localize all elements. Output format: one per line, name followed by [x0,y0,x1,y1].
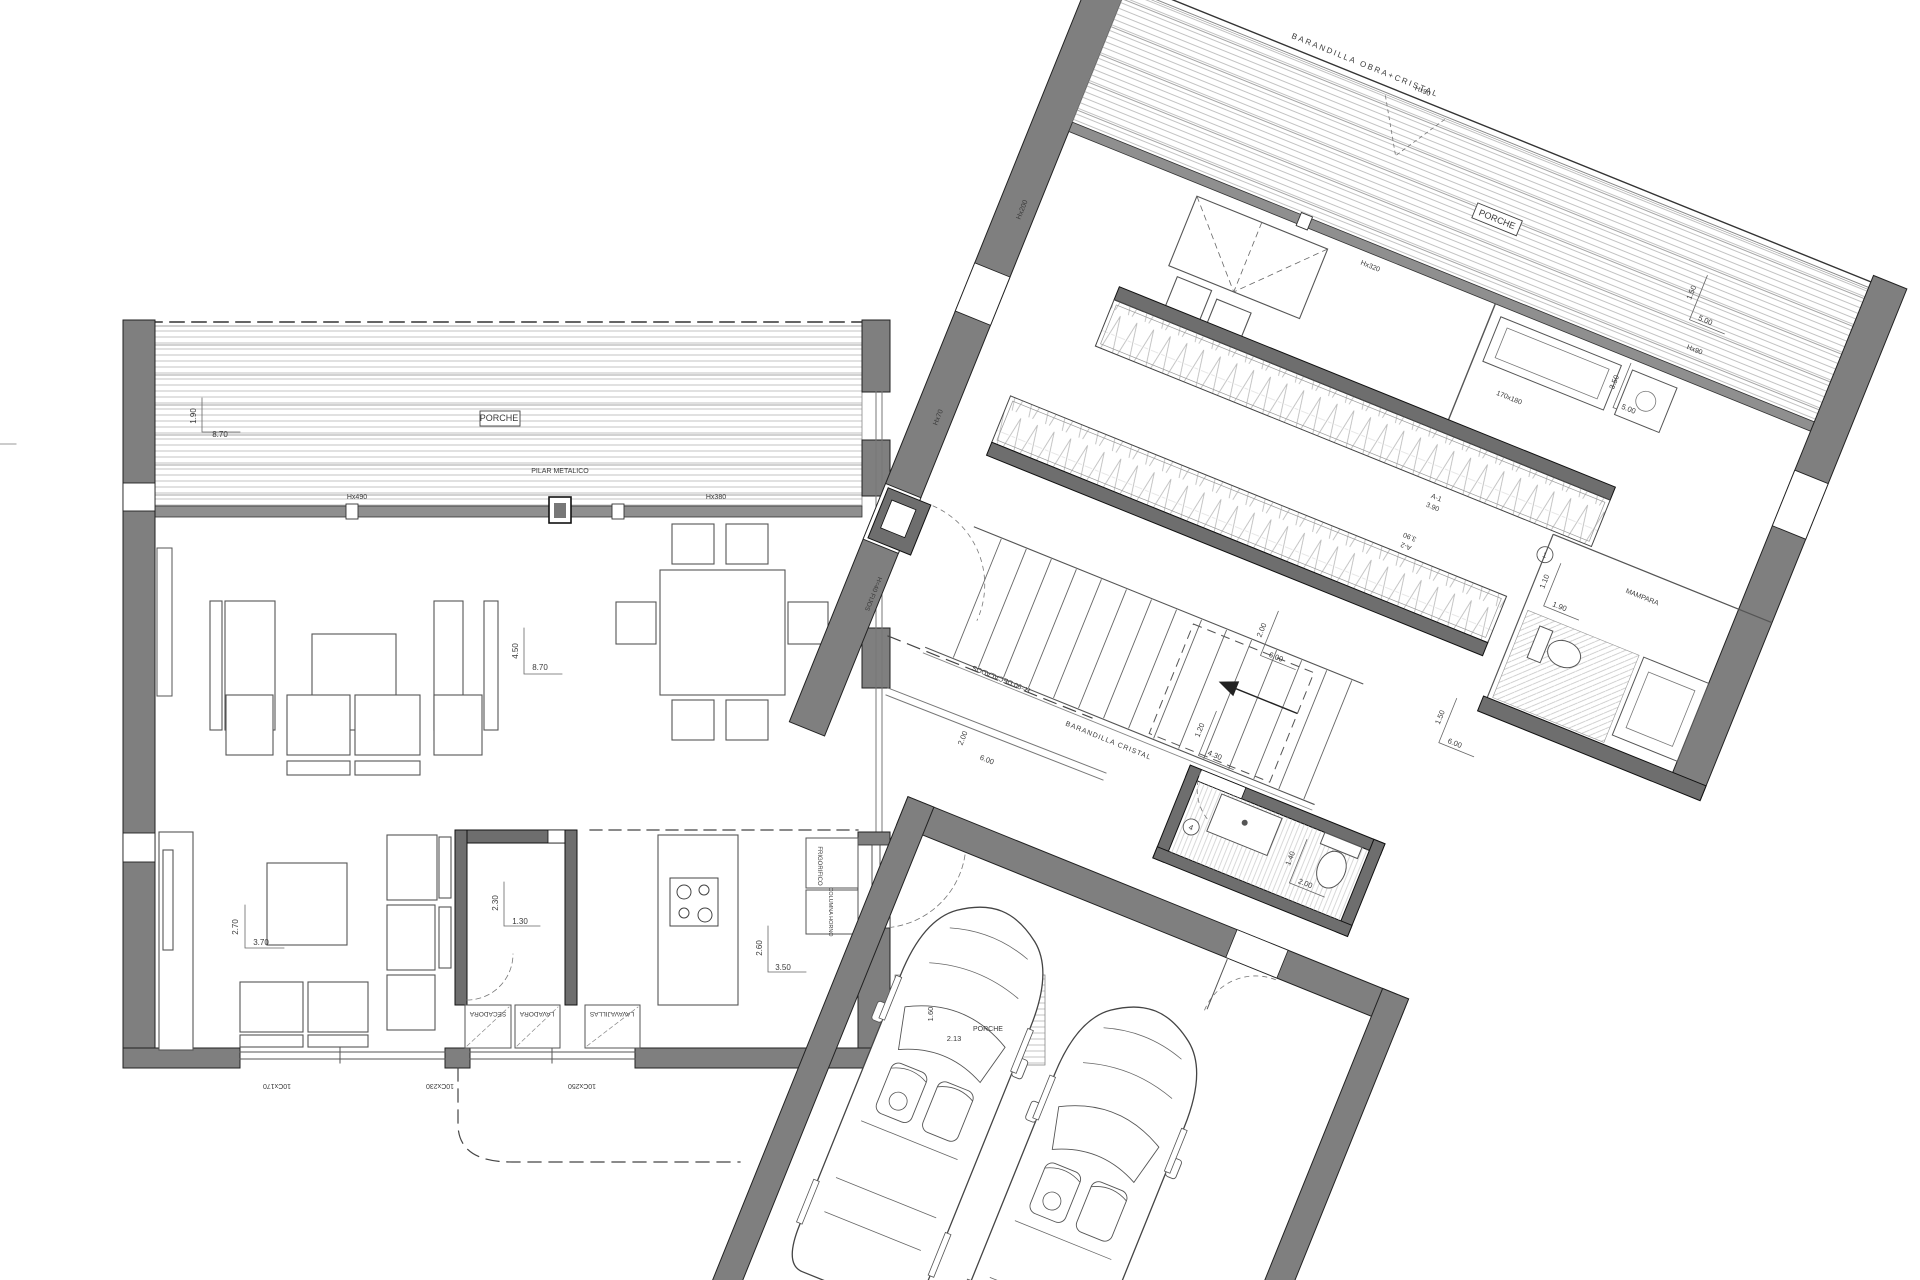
label-closet-a2: A-2 [1400,540,1413,551]
patio-glass [886,688,1106,780]
side-table [267,863,347,945]
label-secadora: SECADORA [469,1010,506,1017]
label-stairs-dim-h: 2.00 [1255,622,1269,639]
label-barandilla-cristal: BARANDILLA CRISTAL [1064,721,1152,762]
label-forecourt-dim-h: 2.00 [956,730,970,747]
label-porche-small-label: PORCHE [973,1026,1003,1033]
label-pilar-metalico: PILAR METALICO [531,468,589,475]
label-porche-main-label: PORCHE [480,413,519,423]
west-window-2 [123,833,155,862]
label-porche-dim-width: 8.70 [212,430,228,439]
label-living-dim-width: 8.70 [532,663,548,672]
label-lavadora: LAVADORA [519,1010,554,1017]
label-closet-a1: A-1 [1430,493,1443,504]
label-steps-spec-2: 10Cx230 [426,1082,454,1089]
dining-table [660,570,785,695]
tv-room-furniture [159,832,451,1050]
label-storage-dim-width: 1.30 [512,917,528,926]
label-porche-small-dim-h: 1.60 [926,1007,935,1022]
label-decalados: H=90 DECALADOS [971,663,1031,693]
label-bath1-number: 1 [1541,550,1548,560]
label-wing-window-height: Hx320 [1359,260,1380,274]
label-kitchen-dim-width: 3.50 [775,963,791,972]
label-columna-horno: COLUMNA HORNO [827,887,833,937]
label-closet-a1-dim: 3.90 [1425,502,1440,514]
label-bath1-dim-h: 1.10 [1537,573,1551,590]
label-bedroom-dim-height: 2.70 [231,919,240,935]
stair-void [1149,624,1314,782]
label-bedroom-dim-width: 3.70 [253,938,269,947]
fridge [806,838,858,888]
label-steps-spec-1: 10Cx170 [263,1082,291,1089]
radiator [157,548,172,696]
label-kitchen-dim-height: 2.60 [755,940,764,956]
label-closet-a2-dim: 3.90 [1402,530,1417,542]
label-lavavajillas: LAVAVAJILLAS [589,1010,634,1017]
label-living-dim-height: 4.50 [511,643,520,659]
label-frigorifico: FRIGORIFICO [816,846,822,886]
floor-plan-page: BARANDILLA OBRA+CRISTALPORCHEHx90Hx3201.… [0,0,1920,1280]
stair-direction-arrow [1216,674,1240,696]
floor-plan-canvas: BARANDILLA OBRA+CRISTALPORCHEHx90Hx3201.… [0,0,1920,1280]
west-wall [123,320,155,1066]
label-corridor-dim-h: 1.20 [1193,722,1207,739]
label-mampara: MAMPARA [1624,588,1659,608]
label-steps-spec-3: 10Cx250 [568,1082,596,1089]
label-bath1-dim-w: 1.90 [1551,600,1568,614]
label-porche-dim-height: 1.90 [189,408,198,424]
label-window-height-right: Hx380 [706,494,726,501]
label-window-height-left: Hx490 [347,494,367,501]
label-forecourt-dim-w: 6.00 [978,753,995,767]
label-shower-size: 170x180 [1495,390,1523,407]
label-storage-dim-height: 2.30 [491,895,500,911]
west-window-1 [123,483,155,511]
label-porche-small-dim-w: 2.13 [947,1034,962,1043]
label-hall-dim-w: 6.00 [1446,736,1463,750]
label-stairs-dim-w: 6.00 [1268,650,1285,664]
wing-terrace [1014,0,1882,484]
south-wall [123,1048,895,1068]
living-room-sofas [210,601,498,775]
label-hall-dim-h: 1.50 [1433,709,1447,726]
